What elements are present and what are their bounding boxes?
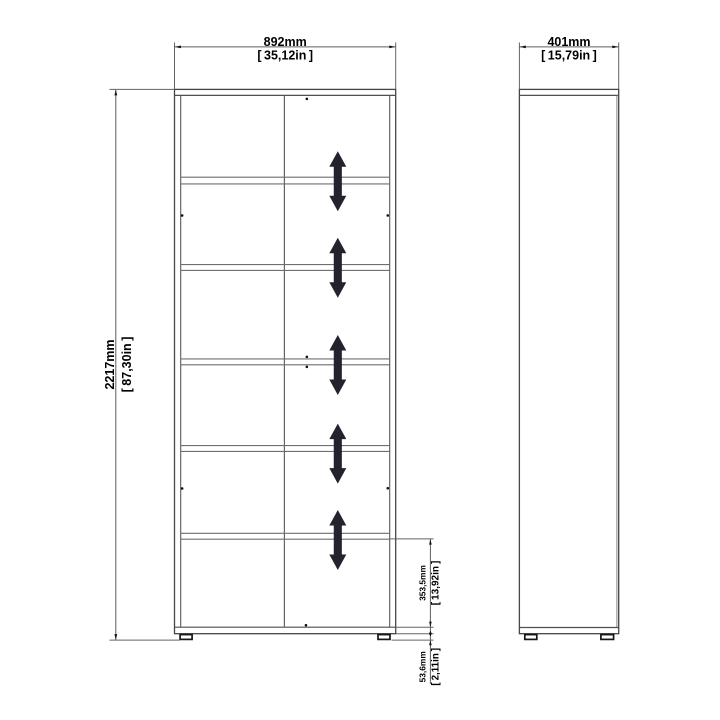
svg-text:[ 35,12in ]: [ 35,12in ] xyxy=(257,49,313,63)
svg-text:401mm: 401mm xyxy=(547,35,590,49)
svg-text:892mm: 892mm xyxy=(264,35,307,49)
svg-text:353,5mm: 353,5mm xyxy=(418,565,428,601)
svg-text:[ 87,30in ]: [ 87,30in ] xyxy=(120,337,134,393)
svg-text:53,6mm: 53,6mm xyxy=(418,651,428,682)
svg-text:[ 13,92in ]: [ 13,92in ] xyxy=(431,561,442,606)
svg-text:[ 15,79in ]: [ 15,79in ] xyxy=(541,49,597,63)
svg-text:2217mm: 2217mm xyxy=(103,339,117,389)
svg-text:[ 2,11in ]: [ 2,11in ] xyxy=(431,648,442,686)
